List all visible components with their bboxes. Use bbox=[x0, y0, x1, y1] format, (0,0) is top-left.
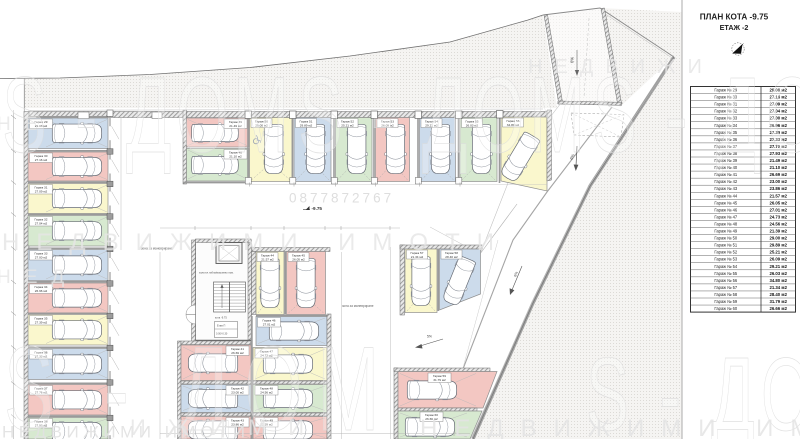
svg-text:29.21 м2: 29.21 м2 bbox=[769, 264, 787, 269]
svg-text:кота -9.75: кота -9.75 bbox=[215, 316, 227, 320]
svg-text:Гараж № 54: Гараж № 54 bbox=[714, 264, 737, 269]
svg-text:31.79 м2: 31.79 м2 bbox=[433, 378, 446, 382]
svg-text:27.09 м2: 27.09 м2 bbox=[35, 189, 48, 193]
svg-text:24.56 м2: 24.56 м2 bbox=[769, 221, 787, 226]
svg-text:34.80 м2: 34.80 м2 bbox=[769, 278, 787, 283]
svg-text:Гараж № 49: Гараж № 49 bbox=[714, 229, 737, 234]
svg-text:21.39 м2: 21.39 м2 bbox=[769, 229, 787, 234]
svg-text:21.57 м2: 21.57 м2 bbox=[261, 257, 274, 261]
svg-text:НЕДВИЖИ: НЕДВИЖИ bbox=[528, 56, 714, 78]
svg-text:Гараж № 43: Гараж № 43 bbox=[714, 186, 737, 191]
svg-text:зала ел.табла/машинно пом.: зала ел.табла/машинно пом. bbox=[199, 271, 234, 275]
svg-text:24.73 м2: 24.73 м2 bbox=[769, 214, 787, 219]
svg-text:26.03 м2: 26.03 м2 bbox=[769, 271, 787, 276]
svg-text:Гараж № 57: Гараж № 57 bbox=[714, 285, 737, 290]
svg-text:Гараж № 50: Гараж № 50 bbox=[714, 236, 737, 241]
svg-text:Гараж № 48: Гараж № 48 bbox=[714, 221, 737, 226]
svg-text:ПЛАН КОТА -9.75: ПЛАН КОТА -9.75 bbox=[700, 13, 769, 22]
svg-text:НЕ: НЕ bbox=[0, 114, 51, 135]
svg-text:27.00 м2: 27.00 м2 bbox=[35, 255, 48, 259]
svg-text:28.40 м2: 28.40 м2 bbox=[769, 292, 787, 297]
svg-text:23.00 м2: 23.00 м2 bbox=[769, 179, 787, 184]
svg-text:Гараж № 51: Гараж № 51 bbox=[714, 243, 737, 248]
svg-text:ЕТАЖ -2: ЕТАЖ -2 bbox=[720, 23, 749, 32]
svg-text:Гараж № 46: Гараж № 46 bbox=[714, 207, 737, 212]
svg-text:ИЖИМИ: ИЖИМИ bbox=[130, 415, 326, 439]
svg-text:Гараж № 58: Гараж № 58 bbox=[714, 292, 737, 297]
svg-text:Гараж № 60: Гараж № 60 bbox=[714, 306, 737, 311]
svg-text:Гараж № 53: Гараж № 53 bbox=[714, 257, 737, 262]
svg-text:НЕДВИЖИМИ ИМОТ: НЕДВИЖИМИ ИМОТ bbox=[420, 415, 800, 439]
svg-text:Гараж № 45: Гараж № 45 bbox=[714, 200, 737, 205]
svg-text:26.05 м2: 26.05 м2 bbox=[292, 257, 305, 261]
svg-text:29.89 м2: 29.89 м2 bbox=[769, 243, 787, 248]
svg-text:-9.75: -9.75 bbox=[312, 206, 323, 211]
svg-text:31.79 м2: 31.79 м2 bbox=[769, 299, 787, 304]
svg-text:Гараж № 42: Гараж № 42 bbox=[714, 179, 737, 184]
svg-text:Гараж № 44: Гараж № 44 bbox=[714, 193, 737, 198]
svg-text:27.04 м2: 27.04 м2 bbox=[35, 221, 48, 225]
svg-text:27.01 м2: 27.01 м2 bbox=[769, 207, 787, 212]
svg-text:Гараж № 56: Гараж № 56 bbox=[714, 278, 737, 283]
svg-text:25.21 м2: 25.21 м2 bbox=[769, 250, 787, 255]
svg-text:29.00 м2: 29.00 м2 bbox=[769, 236, 787, 241]
svg-text:Гараж № 47: Гараж № 47 bbox=[714, 214, 737, 219]
svg-text:26.05 м2: 26.05 м2 bbox=[769, 200, 787, 205]
svg-text:5%: 5% bbox=[427, 335, 432, 339]
svg-text:Гараж № 59: Гараж № 59 bbox=[714, 299, 737, 304]
svg-text:НЕД: НЕД bbox=[0, 267, 78, 288]
svg-text:0877872767: 0877872767 bbox=[289, 191, 394, 206]
svg-text:Гараж № 52: Гараж № 52 bbox=[714, 250, 737, 255]
svg-text:26.66 м2: 26.66 м2 bbox=[769, 306, 787, 311]
svg-text:21.34 м2: 21.34 м2 bbox=[769, 285, 787, 290]
svg-text:26.96 м2: 26.96 м2 bbox=[35, 289, 48, 293]
svg-text:26.09 м2: 26.09 м2 bbox=[769, 257, 787, 262]
svg-text:Гараж № 55: Гараж № 55 bbox=[714, 271, 737, 276]
svg-text:21.57 м2: 21.57 м2 bbox=[769, 193, 787, 198]
svg-text:23.86 м2: 23.86 м2 bbox=[769, 186, 787, 191]
svg-text:зона за маневриране: зона за маневриране bbox=[342, 304, 374, 308]
svg-text:6%: 6% bbox=[513, 270, 519, 277]
svg-text:НЕДВИЖИМИ ИМОТИ: НЕДВИЖИМИ ИМОТИ bbox=[2, 229, 511, 256]
